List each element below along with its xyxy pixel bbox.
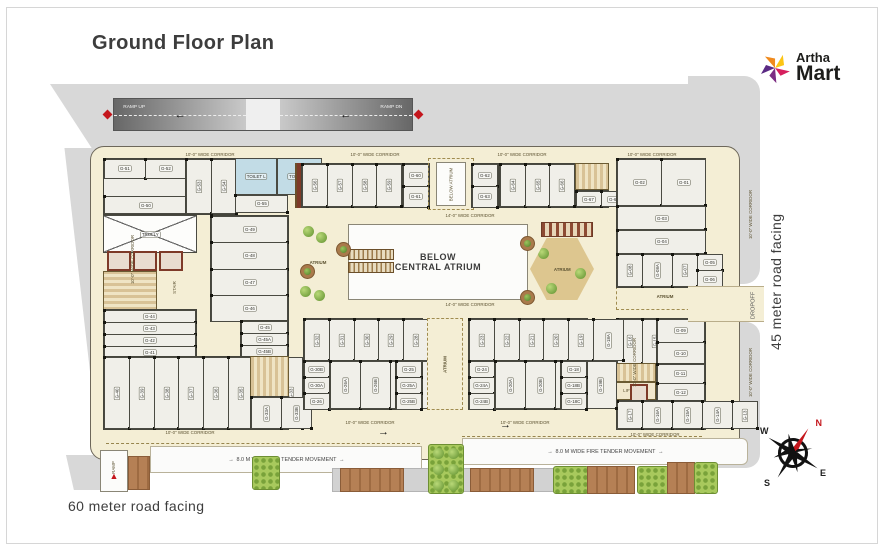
unit-g-58: G-58 (352, 164, 378, 207)
unit-g-25b: G-25B (396, 393, 422, 410)
unit-g-31: G-31 (329, 319, 355, 361)
ramp-end-marker (103, 110, 113, 120)
unit-g-65: G-65 (525, 164, 551, 207)
dropoff-label: DROPOFF (749, 287, 755, 319)
corridor-label: 10'-0" WIDE CORRIDOR (337, 420, 403, 425)
hedge (553, 466, 589, 494)
escalator (348, 262, 394, 273)
tree-icon (433, 480, 444, 491)
unit-g-08a: G-08A (642, 254, 673, 287)
unit-g-07: G-07 (672, 254, 698, 287)
unit-g-37: G-37 (178, 357, 204, 429)
planter-icon (520, 290, 535, 305)
logo-text-mart: Mart (796, 64, 840, 83)
unit-g-26a: G-26A (330, 361, 361, 409)
compass-s: S (764, 478, 770, 488)
corridor-dashed-line (106, 443, 420, 444)
unit-g-59: G-59 (376, 164, 402, 207)
planter-icon (520, 236, 535, 251)
unit-g-23: G-23 (469, 319, 495, 361)
unit-g-54: G-54 (211, 159, 237, 214)
unit-g-25a: G-25A (396, 377, 422, 394)
unit-g-05: G-05 (697, 254, 723, 272)
corridor-label-vertical: 10'-0" WIDE CORRIDOR (632, 338, 637, 387)
lift-bank (107, 251, 183, 271)
unit-g-18a: G-18A (593, 319, 624, 361)
trolly-area: TROLLY (103, 215, 197, 253)
unit-g-30: G-30 (354, 319, 380, 361)
tree-icon (433, 464, 444, 475)
unit-g-17: G-17 (617, 401, 643, 429)
unit-g-29: G-29 (378, 319, 404, 361)
tree-icon (448, 480, 459, 491)
unit-g-33a: G-33A (251, 397, 282, 429)
bottom-atrium-strip: ATRIUM (427, 318, 463, 410)
right-arrow-icon: → (658, 448, 663, 454)
unit-g-19: G-19 (568, 319, 594, 361)
unit-g-60: G-60 (403, 164, 429, 187)
unit-g-64: G-64 (500, 164, 526, 207)
bottom-left-cluster: G-32G-31G-30G-29G-28G-27 G-30BG-30AG-26 … (303, 318, 421, 408)
paver-crossing (340, 468, 404, 492)
unit-g-26: G-26 (304, 393, 330, 410)
paver-strip (128, 456, 150, 490)
corridor-label: 10'-0" WIDE CORRIDOR (489, 152, 555, 157)
unit-g-18c: G-18C (561, 393, 587, 410)
unit-g-13: G-13 (732, 401, 758, 429)
unit-g-22: G-22 (494, 319, 520, 361)
unit-g-15a: G-15A (672, 401, 703, 429)
ramp-up-label: RAMP UP (123, 104, 145, 109)
unit-g-25: G-25 (396, 361, 422, 378)
unit-g-46: G-46 (211, 295, 288, 322)
corridor-label: 10'-0" WIDE CORRIDOR (157, 430, 223, 435)
right-arrow-icon: → (378, 427, 389, 437)
staircase (575, 163, 609, 190)
lift (159, 251, 183, 271)
unit-g-55: G-55 (235, 195, 288, 213)
paver-strip (667, 462, 695, 494)
unit-g-36: G-36 (203, 357, 229, 429)
unit-g-28: G-28 (403, 319, 429, 361)
tree-icon (448, 464, 459, 475)
logo: Artha Mart (760, 42, 876, 92)
top-center-right-cluster: G-62G-63 G-64G-65G-66 G-67G-68 (471, 163, 601, 208)
unit-g-53: G-53 (186, 159, 212, 214)
staircase (250, 356, 289, 398)
escalator (348, 249, 394, 260)
central-escalators (348, 248, 394, 274)
compass-n: N (816, 418, 823, 428)
corridor-label-vertical: 10'-0" WIDE CORRIDOR (748, 190, 753, 239)
right-arrow-icon: → (547, 448, 552, 454)
paver-crossing (470, 468, 534, 492)
corridor-label-vertical: 10'-0" WIDE CORRIDOR (748, 348, 753, 397)
unit-g-18b: G-18B (561, 377, 587, 394)
unit-g-67: G-67 (576, 191, 602, 207)
floor-plan-canvas: Ground Floor Plan Artha Mart RAMP UP ← (0, 0, 884, 546)
unit-g-01: G-01 (661, 159, 706, 206)
seating-area (541, 222, 593, 237)
page-title: Ground Floor Plan (92, 32, 274, 55)
unit-g-40: G-40 (104, 357, 130, 429)
unit-g-39: G-39 (129, 357, 155, 429)
corridor-label: 10'-0" WIDE CORRIDOR (622, 432, 688, 437)
unit-g-20b: G-20B (525, 361, 556, 409)
unit-g-38: G-38 (154, 357, 180, 429)
paver-strip (587, 466, 635, 494)
west-block: G-51G-52 G-50 G-53G-54 TOILET L TOILET G… (103, 158, 287, 428)
unit-g-50: G-50 (104, 196, 187, 214)
unit-g-66: G-66 (549, 164, 575, 207)
ramp-dn-label: RAMP DN (381, 104, 403, 109)
unit-g-21: G-21 (519, 319, 545, 361)
unit-g-03: G-03 (617, 206, 706, 230)
unit-g-24: G-24 (469, 361, 495, 378)
road-label-bottom: 60 meter road facing (68, 498, 204, 514)
tree-icon (314, 290, 325, 301)
unit-g-14a: G-14A (702, 401, 733, 429)
tree-icon (303, 226, 314, 237)
unit-g-24b: G-24B (469, 393, 495, 410)
compass-w: W (760, 426, 769, 436)
unit-g-30a: G-30A (304, 377, 330, 394)
planter-icon (336, 242, 351, 257)
corridor-label: 14'-0" WIDE CORRIDOR (437, 213, 503, 218)
unit-g-30b: G-30B (304, 361, 330, 378)
unit-g-48: G-48 (211, 242, 288, 269)
bottom-right-cluster: G-23G-22G-21G-20G-19G-18A G-24G-24AG-24B… (468, 318, 586, 408)
unit-g-20: G-20 (543, 319, 569, 361)
tree-icon (433, 448, 444, 459)
corridor-label: 10'-0" WIDE CORRIDOR (177, 152, 243, 157)
center-median (428, 444, 464, 494)
tree-icon (575, 268, 586, 279)
unit-g-24a: G-24A (469, 377, 495, 394)
unit-g-32: G-32 (304, 319, 330, 361)
unit-g-63: G-63 (472, 186, 498, 209)
ramp-top: RAMP UP ← ← RAMP DN (104, 99, 422, 130)
fire-lane-right: → 8.0 M WIDE FIRE TENDER MOVEMENT → (462, 438, 748, 465)
compass-e: E (820, 468, 826, 478)
unit-g-56: G-56 (302, 164, 328, 207)
corridor-label: 10'-0" WIDE CORRIDOR (619, 152, 685, 157)
corridor-label: 10'-0" WIDE CORRIDOR (342, 152, 408, 157)
corridor-label-vertical: 10'-0" WIDE CORRIDOR (130, 235, 135, 284)
unit-g-09: G-09 (657, 319, 705, 343)
unit-g-57: G-57 (327, 164, 353, 207)
unit-g-20a: G-20A (495, 361, 526, 409)
hedge (694, 462, 718, 494)
unit-g-02: G-02 (617, 159, 662, 206)
right-arrow-icon: → (500, 420, 511, 430)
tree-icon (300, 286, 311, 297)
unit-g-61: G-61 (403, 186, 429, 209)
unit-g-10: G-10 (657, 342, 705, 366)
right-arrow-icon: → (339, 456, 344, 462)
unit-g-08: G-08 (617, 254, 643, 287)
unit-g-49: G-49 (211, 216, 288, 243)
top-center-left-cluster: G-56G-57G-58G-59 G-60G-61 (295, 163, 425, 208)
lift (107, 251, 131, 271)
unit-g-26b: G-26B (360, 361, 391, 409)
toilet-ladies: TOILET L (235, 158, 277, 195)
ramp-end-marker (414, 110, 424, 120)
tree-icon (546, 283, 557, 294)
fire-lane-label: 8.0 M WIDE FIRE TENDER MOVEMENT (555, 448, 655, 454)
corridor-label: 14'-0" WIDE CORRIDOR (437, 302, 503, 307)
unit-g-62: G-62 (472, 164, 498, 187)
right-arrow-icon: → (228, 456, 233, 462)
ramp-bottom: RAMP ▲ (100, 450, 128, 492)
planter-icon (300, 264, 315, 279)
unit-g-11: G-11 (657, 364, 705, 384)
tree-icon (316, 232, 327, 243)
unit-g-19b: G-19B (585, 361, 616, 409)
road-label-right: 45 meter road facing (768, 180, 784, 350)
lift (133, 251, 157, 271)
unit-g-51: G-51 (104, 159, 146, 179)
stair-label: STAIR (172, 281, 177, 294)
unit-g-16a: G-16A (642, 401, 673, 429)
hedge (252, 456, 280, 490)
unit-g-47: G-47 (211, 269, 288, 296)
unit-g-52: G-52 (145, 159, 187, 179)
logo-star-icon (760, 49, 794, 85)
unit-g-04: G-04 (617, 230, 706, 254)
compass-icon: N W S E (762, 422, 824, 484)
fire-lane-label: 8.0 M WIDE FIRE TENDER MOVEMENT (236, 456, 336, 462)
unit-g-18: G-18 (561, 361, 587, 378)
below-atrium: BELOW ATRIUM (436, 162, 466, 206)
hedge (637, 466, 669, 494)
tree-icon (448, 448, 459, 459)
